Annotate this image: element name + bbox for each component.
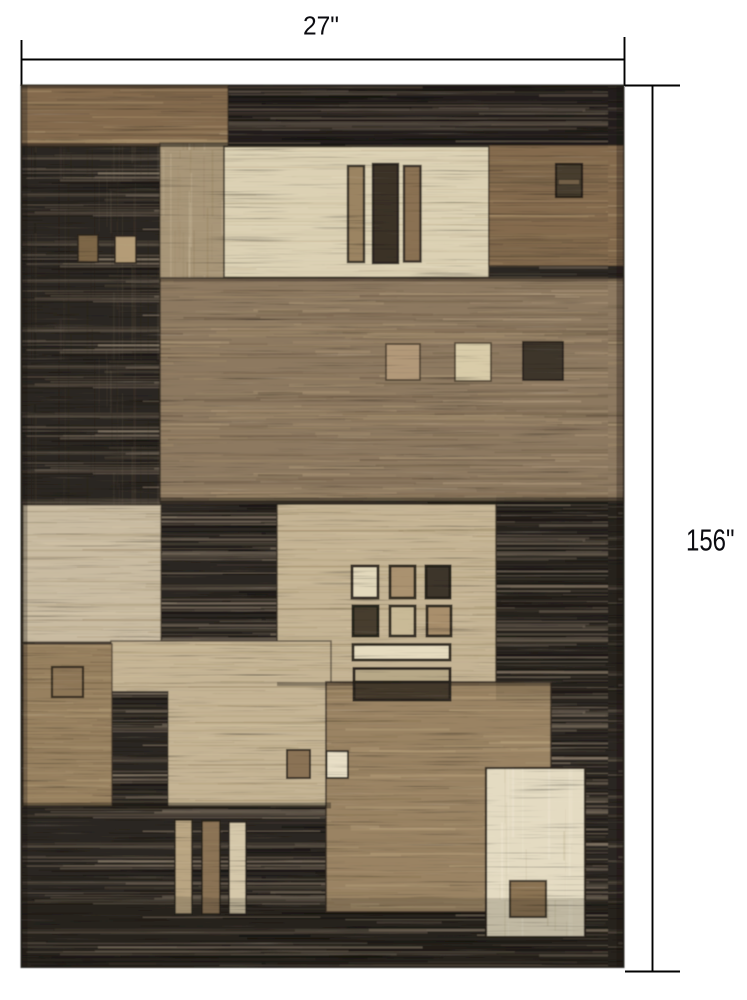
svg-text:27": 27" bbox=[303, 13, 339, 41]
svg-text:156": 156" bbox=[686, 524, 735, 558]
